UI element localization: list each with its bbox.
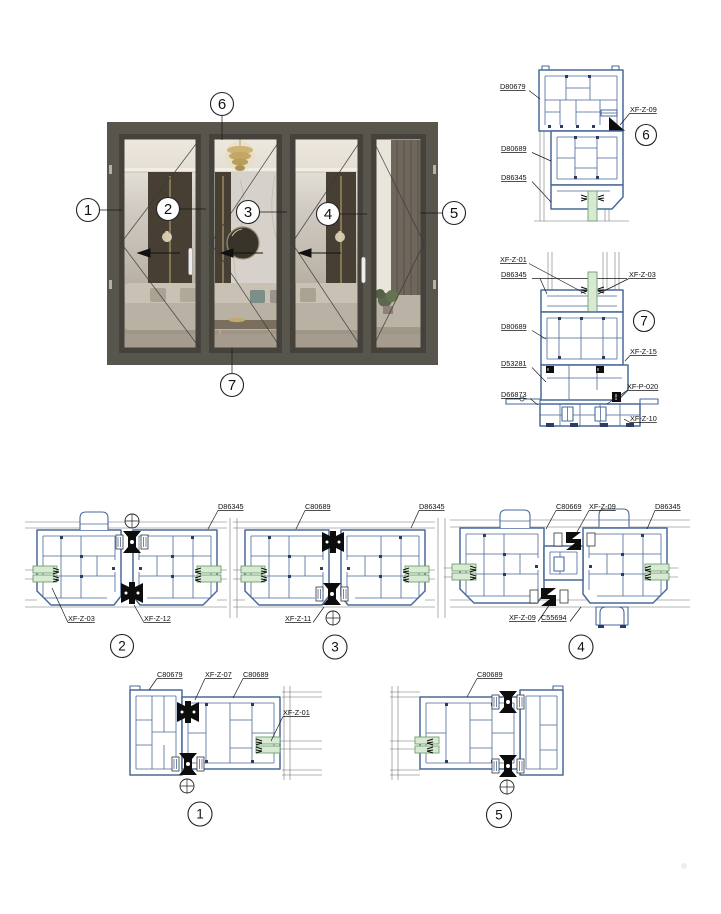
detail-section-1: C80679 XF-Z-07 C80689 XF-Z-01 1 xyxy=(130,670,322,826)
callout-number: 3 xyxy=(244,204,252,221)
detail-section-7: XF-Z-01 D86345 XF-Z-03 D80689 XF-Z-15 D5… xyxy=(500,252,658,427)
detail-5-labels: C80689 xyxy=(467,670,503,697)
detail-section-2: D86345 XF-Z-03 XF-Z-12 2 xyxy=(25,502,244,658)
callout-3-detail: 3 xyxy=(323,635,347,659)
callout-2-detail: 2 xyxy=(111,635,134,658)
part-label: XF-Z-01 xyxy=(283,708,310,717)
callout-5: 5 xyxy=(443,202,466,225)
part-label: XF-Z-07 xyxy=(205,670,232,679)
callout-3: 3 xyxy=(237,201,260,224)
detail-section-5: C80689 5 xyxy=(390,670,563,828)
print-smudge xyxy=(681,863,687,869)
callout-number: 2 xyxy=(118,639,126,654)
callout-4: 4 xyxy=(317,203,340,226)
part-label: C80679 xyxy=(157,670,183,679)
detail-section-6: D80679 XF-Z-09 D80689 D86345 6 xyxy=(500,66,657,221)
callout-4-detail: 4 xyxy=(569,635,593,659)
part-label: C80689 xyxy=(243,670,269,679)
part-label: XF-Z-12 xyxy=(144,614,171,623)
callout-number: 6 xyxy=(642,128,650,143)
door-handle[interactable] xyxy=(362,257,366,283)
part-label: D86345 xyxy=(419,502,445,511)
part-label: XF-Z-09 xyxy=(630,105,657,114)
drawing-sheet: 1 2 3 4 5 6 7 D80679 XF-Z-09 D80689 D863… xyxy=(0,0,721,914)
callout-5-detail: 5 xyxy=(487,803,512,828)
part-label: XF-Z-09 xyxy=(589,502,616,511)
part-label: XF-Z-10 xyxy=(630,414,657,423)
callout-number: 6 xyxy=(218,96,226,113)
part-label: XF-P-020 xyxy=(627,382,658,391)
callout-7: 7 xyxy=(221,374,244,397)
part-label: D86345 xyxy=(501,270,527,279)
part-label: XF-Z-01 xyxy=(500,255,527,264)
elevation-view: 1 2 3 4 5 6 7 xyxy=(77,93,466,397)
part-label: XF-Z-15 xyxy=(630,347,657,356)
detail-section-3: C80689 D86345 XF-Z-11 3 xyxy=(233,502,445,659)
callout-number: 4 xyxy=(577,640,585,655)
part-label: D80689 xyxy=(501,322,527,331)
callout-2: 2 xyxy=(157,198,180,221)
part-label: D80679 xyxy=(500,82,526,91)
glazing-gasket xyxy=(588,191,597,221)
callout-number: 7 xyxy=(640,314,648,329)
callout-6-detail: 6 xyxy=(636,125,657,146)
callout-number: 7 xyxy=(228,377,236,394)
part-label: XF-Z-03 xyxy=(629,270,656,279)
interior-scene xyxy=(119,134,426,353)
part-label: D66873 xyxy=(501,390,527,399)
callout-number: 1 xyxy=(84,202,92,219)
part-label: C80669 xyxy=(556,502,582,511)
callout-number: 3 xyxy=(331,640,339,655)
part-label: D86345 xyxy=(218,502,244,511)
callout-number: 4 xyxy=(324,206,332,223)
part-label: D80689 xyxy=(501,144,527,153)
part-label: XF-Z-09 xyxy=(509,613,536,622)
callout-number: 5 xyxy=(450,205,458,222)
part-label: D53281 xyxy=(501,359,527,368)
part-label: C55694 xyxy=(541,613,567,622)
part-label: C80689 xyxy=(477,670,503,679)
callout-number: 1 xyxy=(196,807,204,822)
callout-number: 2 xyxy=(164,201,172,218)
part-label: C80689 xyxy=(305,502,331,511)
drawing-canvas: 1 2 3 4 5 6 7 D80679 XF-Z-09 D80689 D863… xyxy=(0,0,721,914)
door-handle[interactable] xyxy=(189,248,193,275)
part-label: XF-Z-11 xyxy=(285,614,311,623)
part-label: XF-Z-03 xyxy=(68,614,95,623)
callout-6: 6 xyxy=(211,93,234,116)
part-label: D86345 xyxy=(501,173,527,182)
glazing-gasket xyxy=(588,272,597,312)
callout-1: 1 xyxy=(77,199,100,222)
detail-section-4: C80669 XF-Z-09 D86345 XF-Z-09 C55694 4 xyxy=(444,502,690,659)
part-label: D86345 xyxy=(655,502,681,511)
callout-1-detail: 1 xyxy=(188,802,212,826)
callout-number: 5 xyxy=(495,808,503,823)
callout-7-detail: 7 xyxy=(634,311,655,332)
